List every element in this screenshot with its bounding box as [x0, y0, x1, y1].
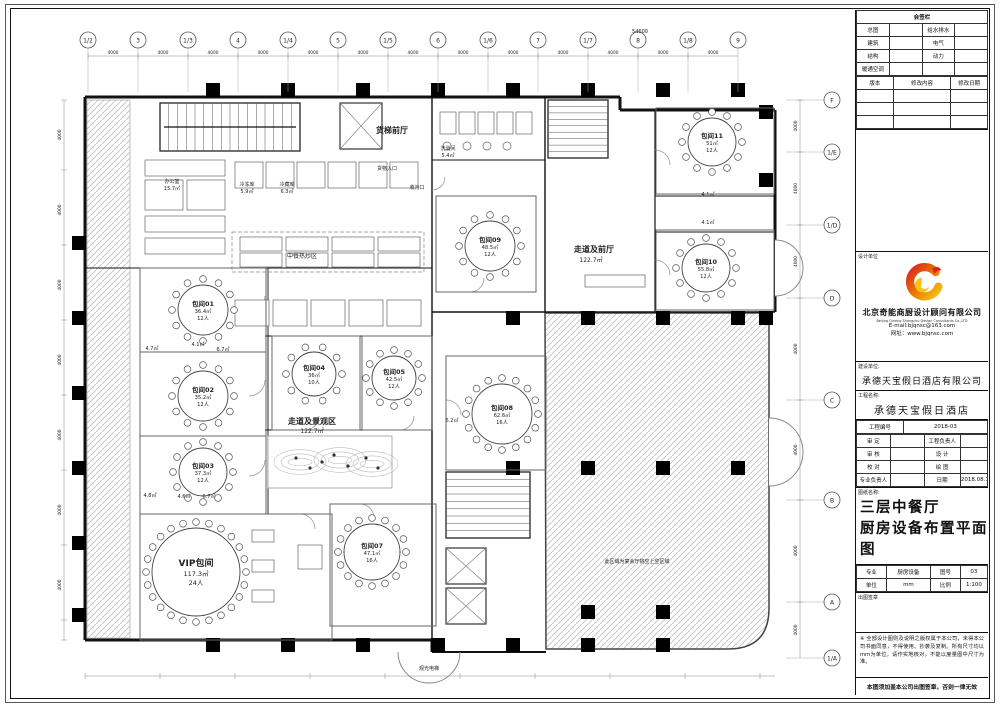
grid-label: 1/E: [827, 150, 837, 157]
chair: [369, 583, 376, 590]
company-logo: [856, 261, 988, 307]
company-website: 网址：www.bjqnsc.com: [856, 329, 988, 337]
chair: [532, 397, 539, 404]
room-label: 24人: [189, 579, 204, 587]
seal-label: 出图签章: [856, 593, 988, 602]
plan-annotation: 6.7㎡: [217, 346, 230, 353]
plan-annotation: 4.6㎡: [178, 493, 191, 500]
room-label: 16人: [496, 419, 508, 426]
dimension-text: 4000: [458, 50, 469, 56]
chair: [200, 276, 207, 283]
chair: [456, 243, 463, 250]
chair: [460, 258, 467, 265]
chair: [512, 377, 519, 384]
column: [581, 605, 595, 619]
plan-annotation: 4.1㎡: [192, 341, 205, 348]
column: [356, 638, 370, 652]
column: [506, 638, 520, 652]
private-room: VIP包间117.3㎡24人: [140, 514, 332, 640]
chair: [193, 519, 200, 526]
dimension-text: 4000: [793, 545, 799, 556]
door-arc: [300, 514, 315, 529]
chair: [319, 344, 326, 351]
grid-label: F: [830, 98, 834, 105]
chair: [382, 517, 389, 524]
grid-label: 1/5: [383, 38, 393, 45]
drawing-title-line1: 三层中餐厅: [856, 497, 988, 518]
column: [72, 461, 86, 475]
column: [72, 236, 86, 250]
chair: [356, 517, 363, 524]
chair: [694, 113, 701, 120]
chair: [405, 399, 412, 406]
chair: [149, 594, 156, 601]
chair: [403, 549, 410, 556]
seal-block: 出图签章: [856, 593, 988, 633]
chair: [144, 582, 151, 589]
chair: [377, 350, 384, 357]
chair: [174, 484, 181, 491]
chair: [471, 216, 478, 223]
chair: [415, 389, 422, 396]
column: [731, 311, 745, 325]
chair: [718, 239, 725, 246]
chair: [228, 604, 235, 611]
room-label: 包间09: [479, 235, 502, 244]
chair: [513, 227, 520, 234]
chair: [184, 333, 191, 340]
dimension-text: 4000: [793, 256, 799, 267]
chair: [485, 444, 492, 451]
room-label: 包间08: [491, 403, 514, 412]
chair: [335, 549, 342, 556]
chair: [703, 235, 710, 242]
approval-table: 工程编号2018-03 审 定工程负责人 审 核设 计 校 对绘 图 专业负责人…: [856, 420, 988, 488]
dimension-text: 4000: [708, 50, 719, 56]
chair: [377, 399, 384, 406]
dimension-text: 4000: [793, 624, 799, 635]
chair: [345, 525, 352, 532]
sign-table: 会签栏 总图给水排水 建筑电气 结构动力 暖通空调 版本 修改内容 修改日期: [856, 10, 988, 130]
design-unit-block: 设计单位 北京奇能商厨设计顾问有限公司 Beijing Qineng Shang…: [856, 252, 988, 362]
column: [72, 608, 86, 622]
bay-window: [775, 240, 803, 296]
room-label: 36㎡: [308, 371, 321, 379]
chair: [302, 344, 309, 351]
chair: [157, 533, 164, 540]
plan-annotation: 货物入口: [377, 165, 397, 172]
column: [731, 461, 745, 475]
column: [759, 311, 773, 325]
chair: [206, 617, 213, 624]
door-arc: [655, 150, 670, 165]
room-label: 37.3㎡: [195, 469, 213, 477]
chair: [236, 544, 243, 551]
chair: [709, 109, 716, 116]
chair: [241, 556, 248, 563]
sign-table-title: 会签栏: [857, 11, 988, 24]
chair: [193, 619, 200, 626]
plan-annotation: 洗消间: [440, 145, 455, 152]
room-label: 12人: [197, 401, 209, 408]
plan-annotation: 冷藏库: [279, 181, 294, 188]
room-label: 包间02: [192, 385, 214, 394]
drawing-name-label: 图纸名称:: [856, 488, 988, 497]
chair: [400, 536, 407, 543]
chair: [184, 419, 191, 426]
room-label: 51㎡: [706, 139, 719, 147]
drawing-sheet: 包间0136.4㎡12人包间0235.2㎡12人包间0337.3㎡12人VIP包…: [0, 0, 1000, 707]
room-label: 包间03: [192, 461, 214, 470]
door-arc: [249, 460, 265, 476]
chair: [184, 366, 191, 373]
room-label: 12人: [706, 147, 718, 154]
chair: [733, 265, 740, 272]
door-arc: [470, 278, 484, 292]
project-label: 工程名称:: [856, 391, 988, 400]
plan-annotation: 5.4㎡: [442, 152, 455, 159]
drawing-title-block: 图纸名称: 三层中餐厅 厨房设备布置平面图: [856, 488, 988, 565]
plan-annotation: 走道及前厅: [573, 244, 614, 254]
grid-label: 1/7: [583, 38, 593, 45]
chair: [180, 617, 187, 624]
chair: [143, 569, 150, 576]
grid-label: 1/3: [183, 38, 193, 45]
chair: [473, 436, 480, 443]
chair: [535, 411, 542, 418]
plan-annotation: 4.1㎡: [702, 191, 715, 198]
plan-annotation: 5.9㎡: [241, 188, 254, 195]
chair: [419, 375, 426, 382]
chair: [688, 239, 695, 246]
dimension-text: 4000: [57, 204, 63, 215]
chair: [532, 424, 539, 431]
chair: [487, 212, 494, 219]
chair: [157, 604, 164, 611]
column: [206, 83, 220, 97]
plan-annotation: 6.7㎡: [203, 493, 216, 500]
dimension-text: 4000: [57, 129, 63, 140]
column: [506, 83, 520, 97]
plan-annotation: 办公室: [164, 178, 179, 185]
chair: [236, 594, 243, 601]
chair: [144, 556, 151, 563]
chair: [391, 347, 398, 354]
dimension-text: 4000: [658, 50, 669, 56]
chair: [218, 612, 225, 619]
dimension-text: 4000: [158, 50, 169, 56]
chair: [333, 354, 340, 361]
private-room: 包间1151㎡12人: [656, 108, 774, 194]
chair: [735, 124, 742, 131]
chair: [200, 424, 207, 431]
room-label: 48.5㎡: [482, 243, 500, 251]
grid-label: 9: [736, 38, 740, 45]
chair: [471, 269, 478, 276]
private-room: 包间0948.5㎡12人: [436, 196, 536, 292]
column: [72, 311, 86, 325]
plan-annotation: 冷冻库: [239, 181, 254, 188]
chair: [729, 280, 736, 287]
plan-annotation: 122.7㎡: [300, 427, 323, 435]
chair: [513, 258, 520, 265]
dimension-text: 4000: [793, 120, 799, 131]
grid-label: C: [830, 398, 834, 405]
chair: [679, 139, 686, 146]
chair: [168, 612, 175, 619]
balcony-hatch: [87, 100, 130, 638]
column: [581, 638, 595, 652]
chair: [393, 525, 400, 532]
chair: [215, 443, 222, 450]
room-label: 包间10: [695, 257, 718, 266]
chair: [524, 385, 531, 392]
chair: [226, 408, 233, 415]
footer-notice: 本图须加盖本公司出图签章，否则一律无效: [856, 678, 988, 695]
plan-annotation: 6.3㎡: [281, 188, 294, 195]
chair: [174, 454, 181, 461]
chair: [499, 375, 506, 382]
chair: [524, 436, 531, 443]
column: [581, 461, 595, 475]
chair: [243, 569, 250, 576]
project-name: 承德天宝假日酒店: [856, 400, 988, 419]
room-label: 10人: [308, 379, 320, 386]
chair: [226, 291, 233, 298]
chair: [226, 322, 233, 329]
chair: [415, 361, 422, 368]
room-label: 12人: [197, 315, 209, 322]
room-label: 117.3㎡: [183, 569, 209, 578]
company-name-en: Beijing Qineng Shangchu Design Consultan…: [863, 318, 982, 323]
chair: [366, 389, 373, 396]
chair: [502, 269, 509, 276]
room-label: 12人: [388, 383, 400, 390]
chair: [337, 562, 344, 569]
dimension-text: 4000: [558, 50, 569, 56]
column: [506, 311, 520, 325]
room-label: 35.2㎡: [195, 393, 213, 401]
chair: [391, 403, 398, 410]
chair: [369, 515, 376, 522]
dimension-text: 4000: [57, 279, 63, 290]
dimension-text: 4000: [57, 429, 63, 440]
revision-table: 版本 修改内容 修改日期: [856, 76, 988, 129]
floor-plan: 包间0136.4㎡12人包间0235.2㎡12人包间0337.3㎡12人VIP包…: [0, 0, 858, 707]
chair: [218, 525, 225, 532]
chair: [473, 385, 480, 392]
chair: [206, 520, 213, 527]
column: [356, 83, 370, 97]
design-unit-label: 设计单位: [856, 252, 988, 261]
title-block: 会签栏 总图给水排水 建筑电气 结构动力 暖通空调 版本 修改内容 修改日期: [855, 10, 988, 695]
chair: [230, 469, 237, 476]
blank-region: [856, 130, 988, 252]
chair: [173, 322, 180, 329]
grid-label: B: [830, 498, 834, 505]
room-label: 包间04: [303, 363, 326, 372]
grid-label: D: [830, 296, 835, 303]
dimension-text: 4000: [208, 50, 219, 56]
grid-label: 4: [236, 38, 240, 45]
grid-label: 1/2: [83, 38, 93, 45]
dimension-text: 4000: [57, 504, 63, 515]
column: [506, 461, 520, 475]
plan-annotation: 4.8㎡: [144, 492, 157, 499]
private-room: 包间0436㎡10人: [272, 336, 360, 430]
chair: [709, 169, 716, 176]
dimension-text: 4000: [408, 50, 419, 56]
dimension-text: 4000: [793, 183, 799, 194]
column: [656, 605, 670, 619]
grid-label: 1/4: [283, 38, 293, 45]
plan-annotation: 4.1㎡: [702, 219, 715, 226]
chair: [283, 371, 290, 378]
chair: [463, 411, 470, 418]
chair: [499, 447, 506, 454]
chair: [339, 371, 346, 378]
chair: [677, 280, 684, 287]
chair: [226, 484, 233, 491]
chair: [688, 291, 695, 298]
plan-annotation: 观光电梯: [419, 665, 439, 672]
dimension-text: 4000: [108, 50, 119, 56]
door-arc: [446, 400, 461, 415]
chair: [215, 366, 222, 373]
project-block: 工程名称: 承德天宝假日酒店: [856, 391, 988, 420]
company-name-cn: 北京奇能商厨设计顾问有限公司: [856, 307, 988, 318]
grid-label: 8: [636, 38, 640, 45]
column: [759, 173, 773, 187]
dimension-text: 4000: [57, 579, 63, 590]
room-label: 16人: [366, 557, 378, 564]
room-label: 包间07: [361, 541, 383, 550]
client-block: 建设单位: 承德天宝假日酒店有限公司: [856, 362, 988, 391]
dimension-text: 4000: [358, 50, 369, 56]
spec-table: 专业厨房设备图号03 单位mm比例1:100: [856, 565, 988, 593]
chair: [724, 113, 731, 120]
chair: [226, 377, 233, 384]
chair: [226, 454, 233, 461]
chair: [173, 377, 180, 384]
chair: [703, 295, 710, 302]
chair: [200, 439, 207, 446]
chair: [724, 165, 731, 172]
client-label: 建设单位:: [856, 362, 988, 371]
column: [759, 105, 773, 119]
room-label: 36.4㎡: [195, 307, 213, 315]
private-room: 包间0235.2㎡12人: [140, 352, 266, 436]
dimension-text: 4000: [308, 50, 319, 56]
chair: [173, 291, 180, 298]
chair: [683, 124, 690, 131]
chair: [241, 582, 248, 589]
column: [72, 536, 86, 550]
room-label: VIP包间: [179, 557, 214, 569]
chair: [683, 154, 690, 161]
private-room: 包间0337.3㎡12人: [140, 436, 266, 514]
column: [431, 638, 445, 652]
chair: [302, 397, 309, 404]
chair: [485, 377, 492, 384]
grid-label: 1/8: [683, 38, 693, 45]
chair: [465, 397, 472, 404]
door-arc: [400, 416, 414, 430]
dimension-text: 4000: [793, 444, 799, 455]
chair: [518, 243, 525, 250]
chair: [215, 333, 222, 340]
chair: [149, 544, 156, 551]
grid-label: 1/6: [483, 38, 493, 45]
plan-annotation: 走道及景观区: [287, 416, 336, 426]
dimension-text: 4000: [508, 50, 519, 56]
chair: [502, 216, 509, 223]
chair: [405, 350, 412, 357]
chair: [169, 393, 176, 400]
chair: [333, 387, 340, 394]
chair: [460, 227, 467, 234]
chair: [694, 165, 701, 172]
overall-dimension: 54600: [632, 29, 648, 35]
chair: [200, 362, 207, 369]
chair: [363, 375, 370, 382]
column: [72, 386, 86, 400]
room-label: 包间05: [383, 367, 406, 376]
void-hatch: [545, 313, 769, 649]
column: [656, 311, 670, 325]
copyright-note: ※ 全部设计图则及说明之版权属于本公司，未得本公司书面同意，不得使用、抄袭及复制…: [856, 633, 988, 678]
chair: [345, 573, 352, 580]
grid-label: 6: [436, 38, 440, 45]
chair: [215, 419, 222, 426]
door-arc: [249, 380, 265, 396]
chair: [170, 469, 177, 476]
room-label: 47.1㎡: [364, 549, 382, 557]
chair: [465, 424, 472, 431]
column: [656, 83, 670, 97]
chair: [366, 361, 373, 368]
chair: [169, 307, 176, 314]
chair: [184, 280, 191, 287]
plan-annotation: 6.2㎡: [446, 417, 459, 424]
chair: [185, 443, 192, 450]
plan-annotation: 货梯前厅: [375, 125, 408, 135]
column: [656, 461, 670, 475]
room-label: 42.5㎡: [386, 375, 404, 383]
client-name: 承德天宝假日酒店有限公司: [856, 371, 988, 390]
plan-annotation: 4.7㎡: [146, 345, 159, 352]
room-label: 包间11: [701, 131, 724, 140]
chair: [231, 307, 238, 314]
private-room: 包间1055.8㎡12人: [656, 230, 774, 310]
plan-annotation: 此区域为宴会厅挑空上空区域: [604, 558, 669, 565]
room-label: 55.8㎡: [698, 265, 716, 273]
door-arc: [432, 177, 445, 190]
dimension-text: 4000: [793, 343, 799, 354]
plan-annotation: 中餐热炒区: [287, 252, 317, 260]
door-arc: [655, 260, 670, 275]
chair: [739, 139, 746, 146]
column: [656, 638, 670, 652]
room-label: 包间01: [192, 299, 215, 308]
chair: [180, 520, 187, 527]
plan-annotation: 收污口: [409, 184, 424, 191]
plan-annotation: 15.7㎡: [164, 185, 180, 192]
chair: [677, 250, 684, 257]
chair: [173, 408, 180, 415]
chair: [215, 280, 222, 287]
private-room: 包间0747.1㎡16人: [330, 504, 436, 626]
